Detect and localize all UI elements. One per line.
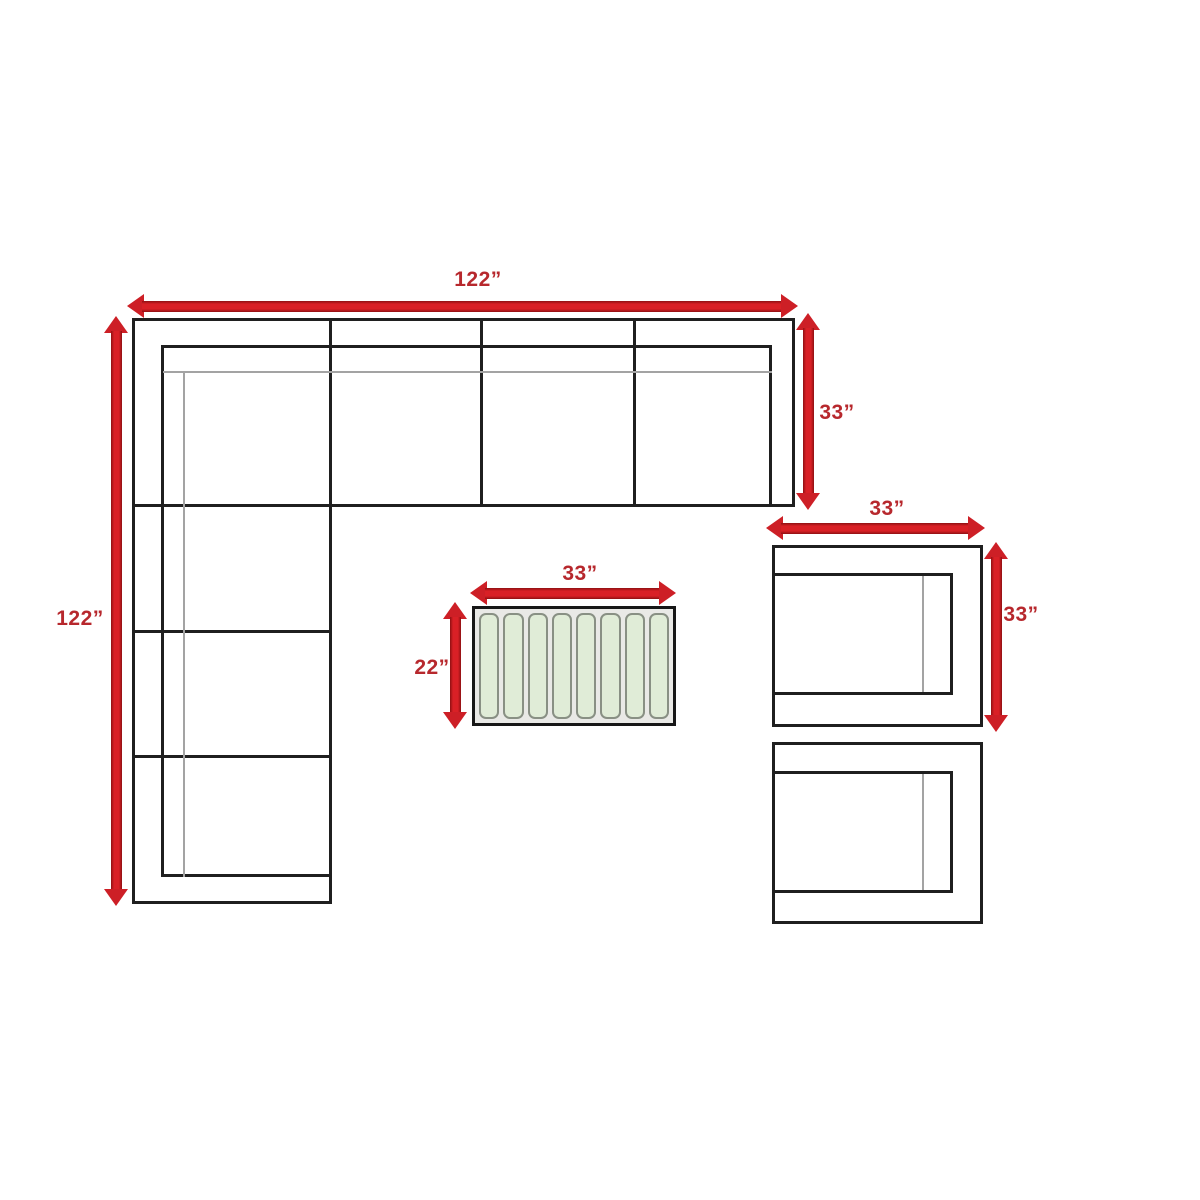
dim-label-table-width: 33” xyxy=(530,563,630,585)
coffee-table xyxy=(472,606,676,726)
sofa-cushion-line xyxy=(163,371,772,373)
dim-label-table-depth: 22” xyxy=(404,657,460,679)
armchair-1-seat xyxy=(772,573,953,695)
armchair-2-cushion-line xyxy=(922,774,924,890)
dim-label-chair-width: 33” xyxy=(837,498,937,520)
table-slat xyxy=(528,613,548,719)
seat-divider xyxy=(132,630,332,633)
arrow-shaft xyxy=(991,557,1002,717)
seat-divider xyxy=(480,318,483,507)
sofa-cushion-line xyxy=(183,371,185,877)
dim-label-sofa-depth: 33” xyxy=(809,402,865,424)
dim-arrow-chair-depth xyxy=(984,542,1008,732)
dim-label-chair-depth: 33” xyxy=(993,604,1049,626)
table-slat xyxy=(479,613,499,719)
arrowhead-down-icon xyxy=(104,889,128,906)
arrowhead-right-icon xyxy=(659,581,676,605)
armchair-1-cushion-line xyxy=(922,576,924,692)
table-slat xyxy=(576,613,596,719)
table-slats xyxy=(479,613,669,719)
arrowhead-down-icon xyxy=(984,715,1008,732)
table-slat xyxy=(600,613,620,719)
table-slat xyxy=(649,613,669,719)
dim-arrow-sofa-width xyxy=(127,294,798,318)
armchair-2-seat xyxy=(772,771,953,893)
arrow-shaft xyxy=(781,523,970,534)
arrow-shaft xyxy=(142,301,783,312)
arrowhead-down-icon xyxy=(443,712,467,729)
arrowhead-down-icon xyxy=(796,493,820,510)
dim-label-sofa-height: 122” xyxy=(38,608,122,630)
seat-divider xyxy=(132,755,332,758)
sofa-left-column-inner-frame xyxy=(161,345,332,877)
floor-plan-diagram: 122” 122” 33” 33” 22” 33” 33” xyxy=(0,0,1200,1200)
table-slat xyxy=(552,613,572,719)
table-slat xyxy=(503,613,523,719)
table-slat xyxy=(625,613,645,719)
arrow-shaft xyxy=(485,588,661,599)
dim-label-sofa-width: 122” xyxy=(428,269,528,291)
arrowhead-right-icon xyxy=(968,516,985,540)
seat-divider xyxy=(633,318,636,507)
